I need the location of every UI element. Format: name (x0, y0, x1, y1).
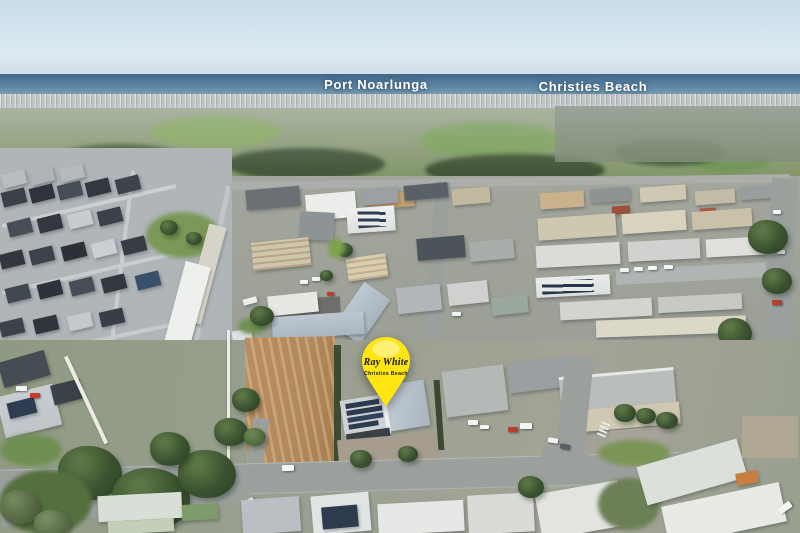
park-tree (186, 232, 202, 245)
location-pin: Ray White Christies Beach (360, 336, 412, 408)
vehicle (327, 292, 334, 296)
lawn (0, 434, 62, 466)
warehouse-roof (539, 190, 584, 209)
tree (232, 388, 260, 412)
warehouse-roof (241, 496, 301, 533)
warehouse-roof (628, 238, 701, 262)
tree-row (614, 404, 636, 422)
truck (664, 265, 673, 269)
truck (634, 267, 643, 271)
warehouse-solar-roof (346, 205, 396, 233)
warehouse-roof (441, 364, 508, 417)
van (480, 425, 489, 429)
tree (518, 476, 544, 498)
label-port-noarlunga: Port Noarlunga (324, 77, 428, 92)
tree (250, 306, 274, 326)
warehouse-roof (469, 238, 515, 262)
warehouse-roof (396, 284, 442, 314)
van (282, 465, 294, 471)
warehouse-roof (447, 280, 489, 306)
park-tree (160, 220, 178, 235)
warehouse-roof (491, 294, 529, 316)
van (468, 420, 478, 425)
vehicle (16, 386, 27, 391)
warehouse-roof (451, 186, 490, 205)
pin-highlight (373, 341, 400, 358)
pin-brand-text: Ray White (360, 357, 412, 368)
pin-office-text: Christies Beach (360, 371, 412, 377)
shed-roof (182, 503, 219, 521)
tree (214, 418, 248, 446)
tree (150, 432, 190, 466)
greenhouse (108, 518, 175, 533)
warehouse-roof (640, 184, 687, 202)
tree (762, 268, 792, 294)
warehouse-roof (416, 235, 466, 261)
sky (0, 0, 800, 76)
grass-patch (328, 238, 344, 258)
tree-row (636, 408, 656, 424)
tree-row (656, 412, 678, 429)
van (520, 423, 532, 429)
tree (398, 446, 418, 462)
truck (648, 266, 657, 270)
label-christies-beach: Christies Beach (539, 79, 648, 94)
truck (620, 268, 629, 272)
vehicle (773, 210, 781, 214)
vehicle (312, 277, 320, 281)
vehicle (30, 393, 40, 398)
tree (320, 270, 333, 281)
olive-tree (34, 510, 70, 533)
solar-panels (321, 504, 359, 529)
warehouse-roof (377, 500, 465, 533)
aerial-photo: Port Noarlunga Christies Beach Ray White… (0, 0, 800, 533)
warehouse-roof (535, 242, 620, 268)
warehouse-roof (361, 186, 398, 205)
warehouse-roof (590, 187, 631, 204)
gravel-yard (742, 416, 798, 458)
tree (748, 220, 788, 254)
warehouse-roof (467, 492, 535, 533)
vehicle (300, 280, 308, 284)
truck (508, 427, 518, 432)
tree (350, 450, 372, 468)
warehouse-solar-roof (536, 274, 611, 298)
tree (244, 428, 266, 446)
vehicle (452, 312, 461, 316)
vehicle (772, 300, 782, 305)
warehouse-roof (695, 189, 736, 206)
